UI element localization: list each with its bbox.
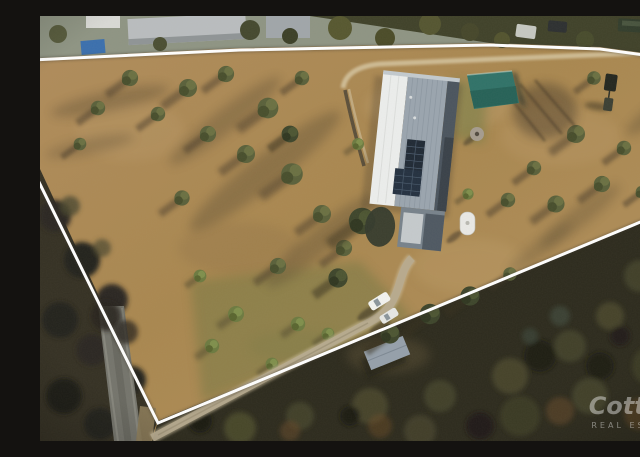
watermark-tagline: REAL ESTATE — [591, 421, 640, 430]
vignette — [40, 16, 640, 441]
aerial-property-photo: Cotton REAL ESTATE — [40, 16, 640, 441]
photo-canvas: Cotton REAL ESTATE — [40, 16, 640, 441]
watermark-brand: Cotton — [589, 392, 640, 420]
watermark: Cotton REAL ESTATE — [589, 392, 640, 430]
